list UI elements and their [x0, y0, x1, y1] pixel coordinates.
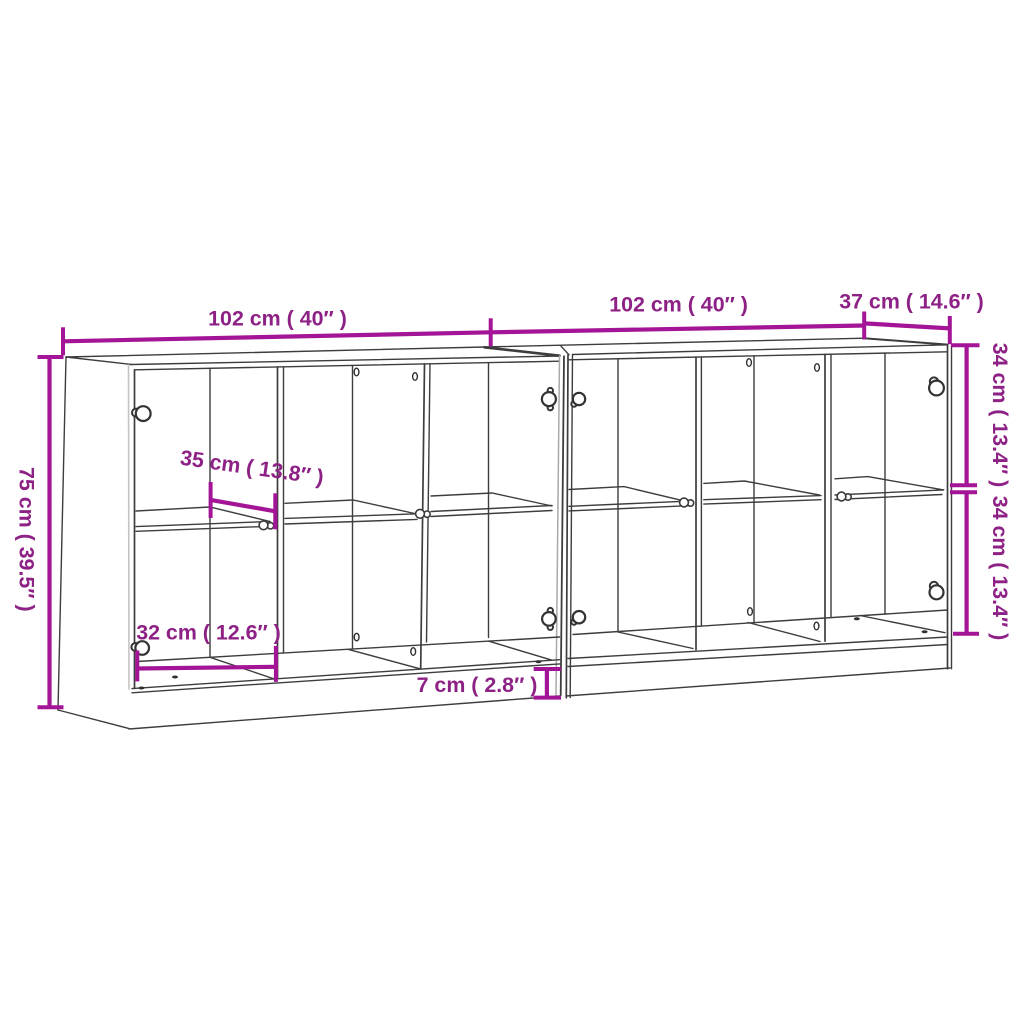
svg-text:102 cm ( 40″ ): 102 cm ( 40″ ) [609, 293, 748, 317]
svg-text:75 cm ( 39.5″ ): 75 cm ( 39.5″ ) [15, 467, 39, 612]
svg-text:34 cm ( 13.4″ ): 34 cm ( 13.4″ ) [988, 496, 1012, 641]
svg-text:32 cm ( 12.6″ ): 32 cm ( 12.6″ ) [136, 621, 281, 645]
svg-text:37 cm ( 14.6″ ): 37 cm ( 14.6″ ) [839, 290, 984, 314]
svg-text:102 cm ( 40″ ): 102 cm ( 40″ ) [208, 307, 347, 331]
svg-text:34 cm ( 13.4″ ): 34 cm ( 13.4″ ) [988, 343, 1012, 488]
svg-text:7 cm ( 2.8″ ): 7 cm ( 2.8″ ) [417, 673, 538, 697]
